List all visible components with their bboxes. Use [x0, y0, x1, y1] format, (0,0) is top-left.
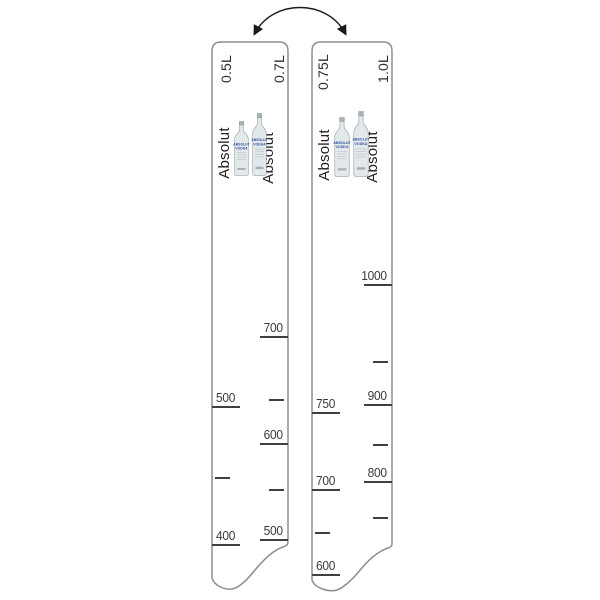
right-scale-value: 900 — [368, 389, 387, 403]
brand-label: Absolut — [318, 120, 332, 190]
vodka-bottle-image — [233, 121, 250, 177]
left-scale-tick-700 — [312, 489, 340, 491]
brand-label: Absolut — [218, 118, 232, 188]
right-scale-tick-800 — [364, 481, 392, 483]
left-scale-tick-750 — [312, 412, 340, 414]
left-scale-tick-400 — [212, 544, 240, 546]
right-scale-value: 500 — [264, 524, 283, 538]
right-scale-tick-minor — [269, 489, 284, 491]
scale-capacity-label-0.75l: 0.75L — [316, 47, 330, 97]
right-scale-value: 600 — [264, 428, 283, 442]
left-scale-value: 400 — [216, 529, 235, 543]
right-scale-tick-minor — [269, 399, 284, 401]
left-scale-value: 500 — [216, 391, 235, 405]
right-scale-tick-minor — [373, 361, 388, 363]
bar-ruler-strip-1: 0.5L 0.7L Absolut Absolut 50040070060050… — [212, 0, 288, 600]
right-scale-tick-1000 — [364, 284, 392, 286]
bar-ruler-strip-2: 0.75L 1.0L Absolut Absolut 7507006001000… — [312, 0, 392, 600]
right-scale-tick-600 — [260, 443, 288, 445]
left-scale-tick-600 — [312, 574, 340, 576]
scale-capacity-label-1.0l: 1.0L — [376, 44, 390, 94]
left-scale-tick-minor — [315, 532, 330, 534]
right-scale-value: 1000 — [361, 269, 387, 283]
vodka-bottle-image — [251, 113, 268, 177]
left-scale-tick-500 — [212, 406, 240, 408]
left-scale-value: 750 — [316, 397, 335, 411]
right-scale-tick-minor — [373, 444, 388, 446]
scale-capacity-label-0.5l: 0.5L — [219, 44, 233, 94]
left-scale-value: 700 — [316, 474, 335, 488]
product-image: ABSOLUT VODKA 0.5L 0.7L Absolut Absolut — [0, 0, 600, 600]
right-scale-value: 700 — [264, 321, 283, 335]
scale-capacity-label-0.7l: 0.7L — [272, 44, 286, 94]
left-scale-value: 600 — [316, 559, 335, 573]
vodka-bottle-image — [333, 117, 351, 178]
vodka-bottle-image — [352, 111, 370, 178]
right-scale-tick-900 — [364, 404, 392, 406]
right-scale-tick-minor — [373, 517, 388, 519]
right-scale-tick-500 — [260, 539, 288, 541]
right-scale-tick-700 — [260, 336, 288, 338]
right-scale-value: 800 — [368, 466, 387, 480]
left-scale-tick-minor — [215, 477, 230, 479]
